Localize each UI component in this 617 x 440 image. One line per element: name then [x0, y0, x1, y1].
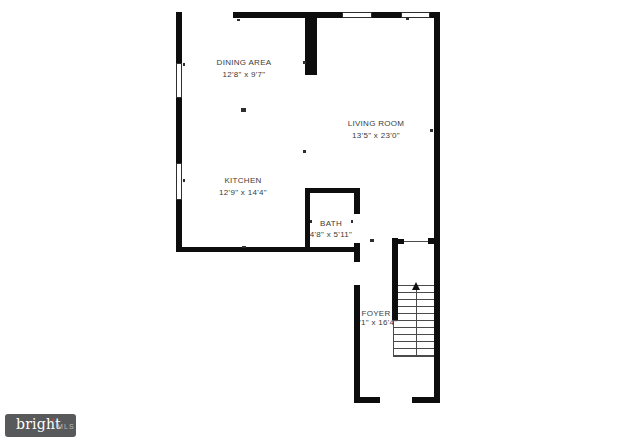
- bottom-wall-right: [412, 397, 440, 403]
- top-window-left-icon: [342, 12, 372, 18]
- stair-tread: [394, 341, 434, 342]
- stair-left-wall: [392, 238, 398, 320]
- room-dimensions-kitchen: 12'9" x 14'4": [219, 188, 267, 197]
- floor-plan-image: DINING AREA12'8" x 9'7"LIVING ROOM13'5" …: [0, 0, 617, 440]
- room-dimensions-bath: 4'8" x 5'11": [310, 230, 352, 239]
- right-wall: [434, 12, 440, 403]
- stair-tread: [394, 313, 434, 314]
- bath-left-wall: [305, 188, 310, 247]
- stair-tread: [394, 299, 434, 300]
- stair-top-stub-left: [398, 239, 404, 244]
- wall-tick: [183, 179, 185, 182]
- bottom-wall-left: [354, 397, 380, 403]
- brightmls-spark-icon: ✦: [50, 416, 55, 423]
- stair-tread: [394, 292, 434, 293]
- brightmls-mls-text: MLS: [57, 423, 75, 430]
- left-wall-middle: [176, 98, 182, 163]
- stair-center-line: [416, 285, 417, 356]
- dining-living-divider: [305, 17, 317, 75]
- room-dimensions-dining-area: 12'8" x 9'7": [222, 70, 265, 79]
- wall-tick: [303, 150, 306, 153]
- stair-tread: [394, 348, 434, 349]
- left-wall-top: [176, 12, 182, 63]
- stair-tread: [394, 334, 434, 335]
- stair-tread: [394, 306, 434, 307]
- left-wall-bottom: [176, 200, 182, 252]
- brightmls-watermark: bright ✦ MLS: [5, 414, 76, 437]
- left-window-lower-icon: [176, 163, 182, 200]
- room-label-foyer: FOYER: [361, 309, 390, 318]
- wall-tick: [406, 18, 409, 20]
- bath-right-wall-lower: [354, 243, 360, 262]
- kitchen-bottom-wall: [176, 247, 360, 252]
- stair-tread: [394, 355, 434, 356]
- wall-tick: [370, 239, 374, 242]
- foyer-left-wall: [354, 285, 360, 403]
- room-label-dining-area: DINING AREA: [217, 58, 272, 67]
- bath-top-wall: [305, 188, 360, 193]
- stair-tread: [394, 320, 434, 321]
- stair-up-arrow-icon: [412, 282, 420, 290]
- left-window-upper-icon: [176, 63, 182, 98]
- wall-tick: [242, 246, 246, 248]
- room-label-kitchen: KITCHEN: [224, 176, 261, 185]
- wall-tick: [241, 108, 246, 112]
- wall-tick: [430, 129, 433, 132]
- room-dimensions-living-room: 13'5" x 23'0": [352, 131, 400, 140]
- stair-bottom-outline: [393, 356, 434, 357]
- wall-tick: [183, 63, 185, 66]
- wall-tick: [351, 220, 353, 223]
- stair-left-outline: [393, 320, 394, 357]
- stair-top-stub-right: [428, 238, 434, 244]
- wall-tick: [310, 220, 312, 223]
- stair-tread: [394, 327, 434, 328]
- wall-tick: [237, 19, 240, 21]
- wall-tick: [303, 61, 306, 64]
- room-label-living-room: LIVING ROOM: [348, 119, 405, 128]
- room-label-bath: BATH: [320, 219, 342, 228]
- bath-right-wall-upper: [354, 188, 360, 214]
- stair-opening-line: [403, 241, 428, 242]
